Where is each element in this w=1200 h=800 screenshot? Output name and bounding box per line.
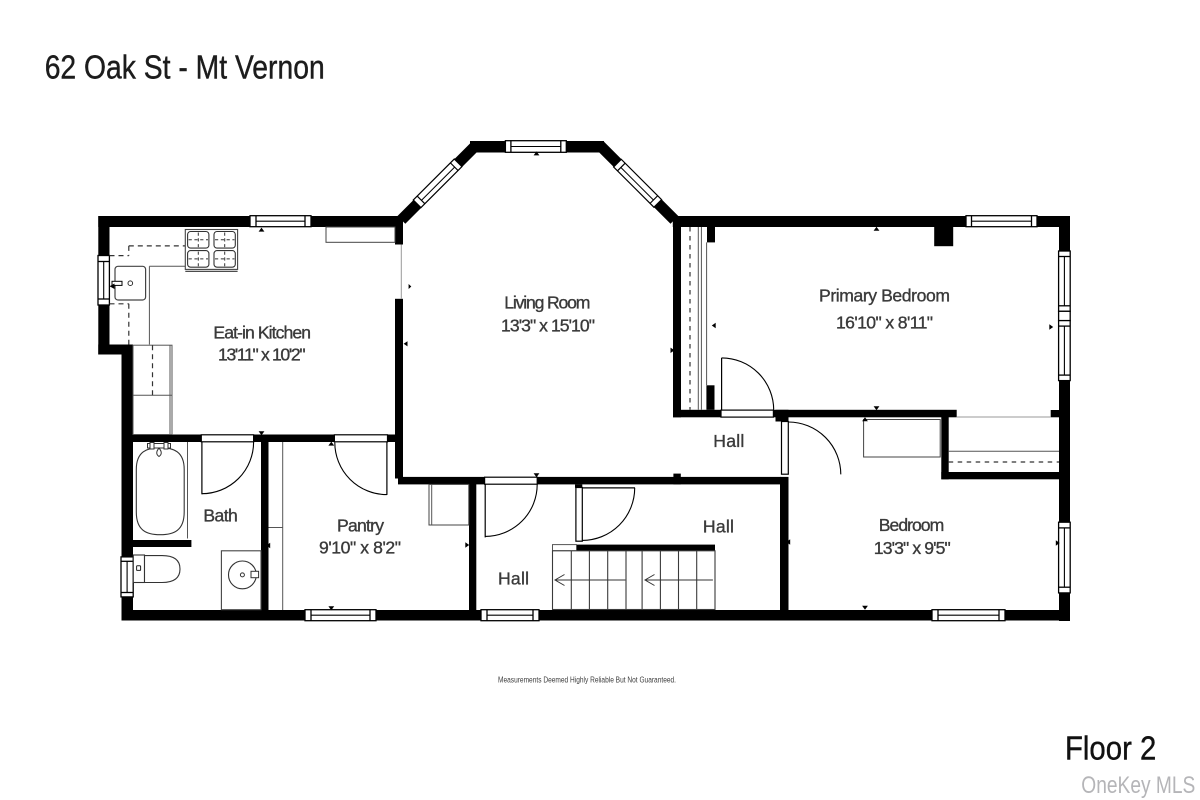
- svg-text:Hall: Hall: [498, 569, 529, 589]
- svg-text:16'10" x 8'11": 16'10" x 8'11": [836, 313, 933, 333]
- svg-text:9'10" x 8'2": 9'10" x 8'2": [319, 538, 401, 558]
- svg-text:Measurements Deemed Highly Rel: Measurements Deemed Highly Reliable But …: [498, 676, 676, 685]
- svg-text:Floor 2: Floor 2: [1065, 730, 1156, 767]
- svg-text:Bath: Bath: [203, 505, 237, 525]
- svg-text:Hall: Hall: [713, 431, 744, 451]
- svg-text:13'3" x 9'5": 13'3" x 9'5": [874, 538, 951, 558]
- svg-text:OneKey MLS: OneKey MLS: [1081, 772, 1195, 799]
- svg-text:62 Oak St - Mt Vernon: 62 Oak St - Mt Vernon: [45, 48, 325, 85]
- svg-text:Bedroom: Bedroom: [879, 515, 945, 535]
- svg-text:Primary Bedroom: Primary Bedroom: [819, 286, 950, 306]
- svg-text:Eat-in Kitchen: Eat-in Kitchen: [213, 323, 311, 343]
- svg-text:Hall: Hall: [703, 517, 734, 537]
- svg-text:Living Room: Living Room: [504, 292, 590, 312]
- svg-text:13'3" x 15'10": 13'3" x 15'10": [501, 315, 595, 335]
- svg-text:13'11" x 10'2": 13'11" x 10'2": [218, 345, 306, 365]
- svg-text:Pantry: Pantry: [337, 515, 384, 535]
